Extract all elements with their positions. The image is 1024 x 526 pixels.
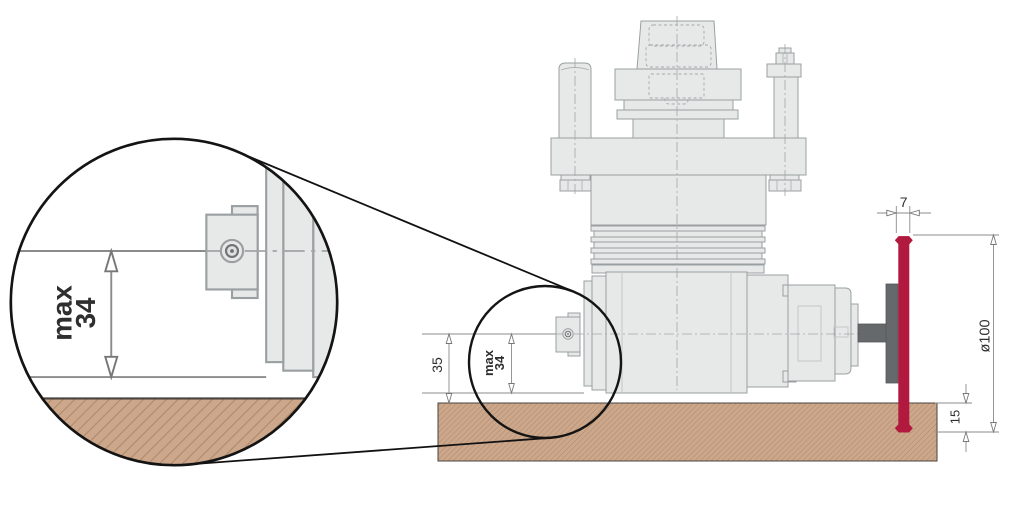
svg-text:35: 35 [429, 357, 445, 373]
svg-text:7: 7 [900, 194, 908, 210]
svg-text:ø100: ø100 [978, 319, 994, 352]
svg-text:15: 15 [948, 410, 963, 424]
svg-text:34: 34 [492, 355, 507, 370]
